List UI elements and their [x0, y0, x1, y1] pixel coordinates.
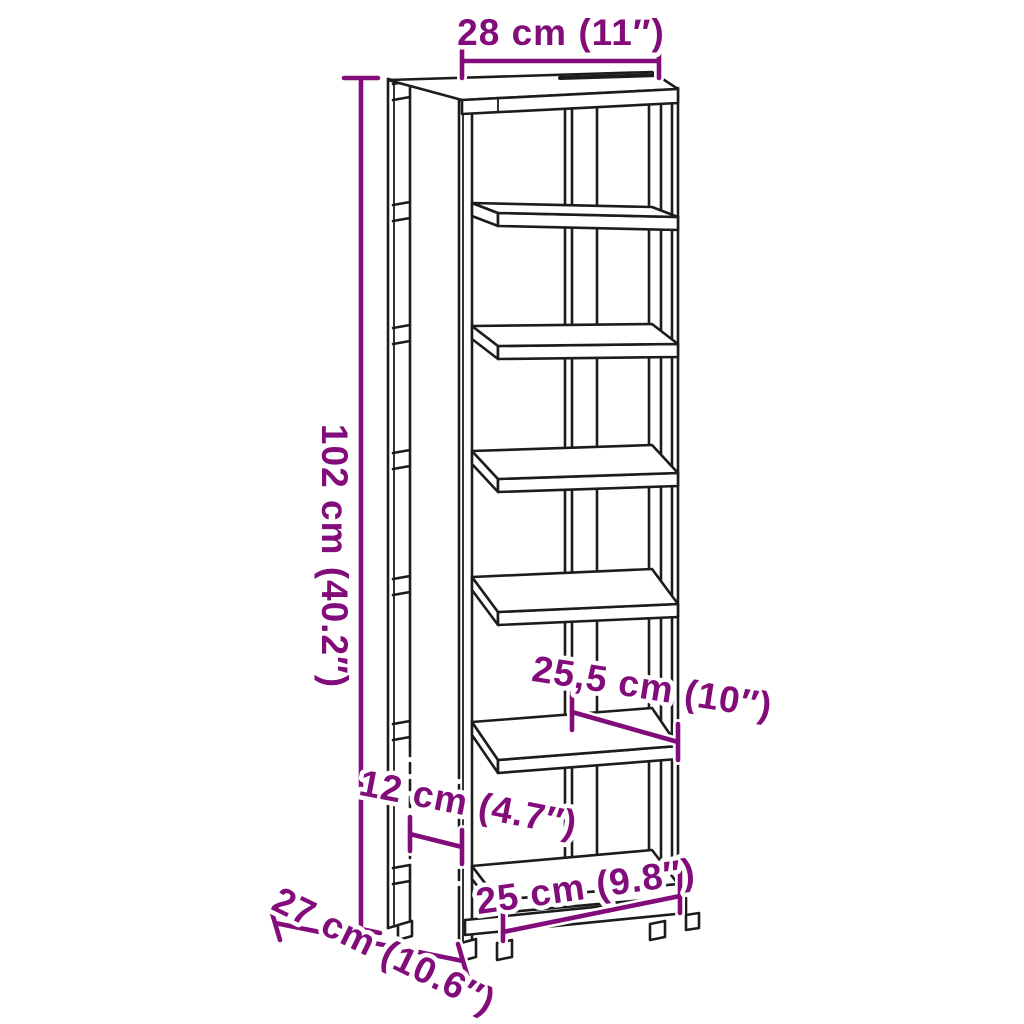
product-diagram-canvas: 28 cm (11″) 102 cm (40.2″) 25,5 cm (10″)… — [0, 0, 1024, 1024]
dim-label-side-gap: 12 cm (4.7″) — [356, 762, 581, 844]
dim-label-top-width: 28 cm (11″) — [457, 12, 665, 53]
foot — [650, 921, 665, 940]
foot — [686, 913, 699, 930]
shelf — [472, 203, 678, 230]
dim-label-height: 102 cm (40.2″) — [314, 424, 355, 688]
shelf — [472, 324, 678, 359]
top-board — [388, 72, 678, 114]
shelf — [472, 445, 678, 492]
panel-connector-notches — [393, 81, 410, 884]
shelf — [472, 569, 678, 625]
dim-line-side-gap — [410, 817, 462, 864]
shoe-rack-dimension-diagram: 28 cm (11″) 102 cm (40.2″) 25,5 cm (10″)… — [0, 0, 1024, 1024]
